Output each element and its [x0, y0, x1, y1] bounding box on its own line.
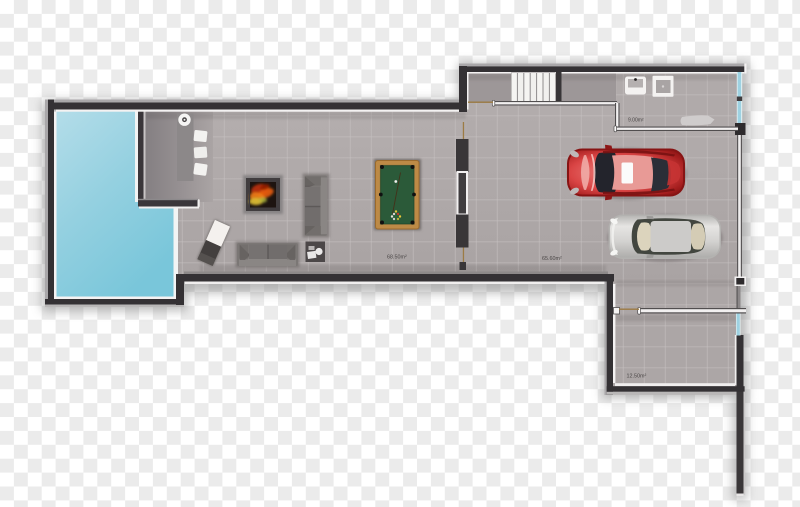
svg-text:12.50m²: 12.50m² [627, 374, 647, 380]
svg-text:9.00m²: 9.00m² [628, 118, 644, 124]
svg-text:68.50m²: 68.50m² [387, 255, 407, 261]
svg-text:65.60m²: 65.60m² [542, 256, 562, 262]
